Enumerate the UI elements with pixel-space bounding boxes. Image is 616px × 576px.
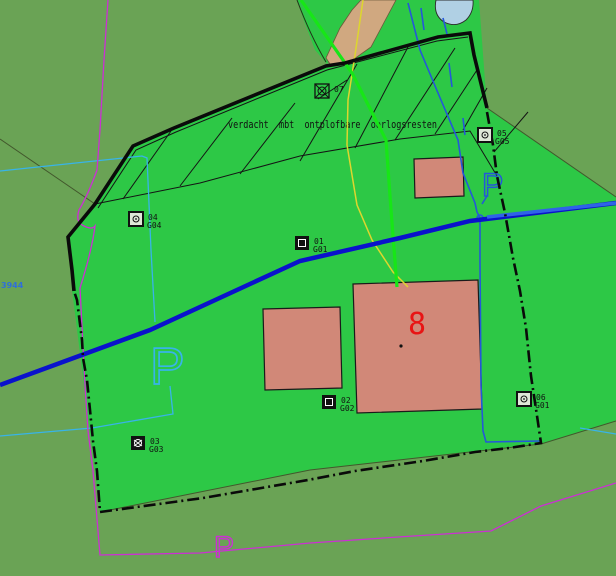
building-number-8 <box>353 280 482 413</box>
marker-02-code: G02 <box>340 404 355 413</box>
marker-05-code: G05 <box>495 137 510 146</box>
survey-point-dot <box>399 344 402 347</box>
marker-07-id: 07 <box>334 85 344 94</box>
marker-06-symbol-dot <box>523 398 525 400</box>
building-number-label: 8 <box>408 307 426 342</box>
marker-02-symbol <box>322 395 336 409</box>
marker-04-code: G04 <box>147 221 162 230</box>
building-north <box>414 157 464 198</box>
marker-01-symbol <box>295 236 309 250</box>
building-middle <box>263 307 342 390</box>
parking-letter-west: P <box>150 338 185 396</box>
marker-04-symbol-dot <box>135 218 137 220</box>
parcel-number-label: 3944 <box>1 281 24 290</box>
parking-letter-south: P <box>214 531 234 564</box>
map-drawing: verdacht mbt ontplofbare oorlogsresten 8… <box>0 0 616 576</box>
marker-05-symbol-dot <box>484 134 486 136</box>
marker-06-code: G01 <box>535 401 550 410</box>
marker-03-code: G03 <box>149 445 164 454</box>
warning-annotation-text: verdacht mbt ontplofbare oorlogsresten <box>228 119 437 131</box>
cad-map-canvas[interactable]: verdacht mbt ontplofbare oorlogsresten 8… <box>0 0 616 576</box>
marker-01-code: G01 <box>313 245 328 254</box>
